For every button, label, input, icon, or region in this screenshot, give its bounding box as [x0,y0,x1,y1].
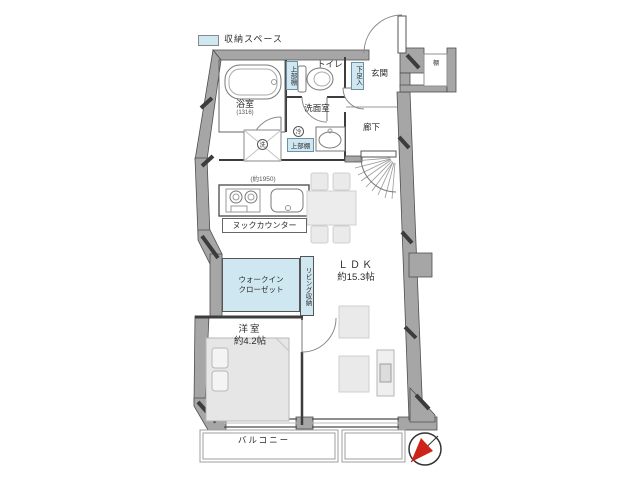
ldk-size-label: 約15.3帖 [337,273,375,283]
bedroom-size-label: 約4.2帖 [234,337,266,347]
walk-in-closet-area: ウォークイン クローゼット [222,258,300,312]
compass-icon [409,433,441,465]
bathroom-fixtures [219,60,285,132]
bedroom-label: 洋室 [238,325,261,335]
wic-label-line1: ウォークイン [239,275,284,285]
living-storage-area: リビング収納 [300,256,314,316]
legend-storage-swatch [198,35,219,46]
entrance-alcove [424,54,447,86]
hallway-label: 廊下 [363,123,380,132]
kitchen-counter [219,185,309,216]
entrance-label: 玄関 [371,69,388,78]
toilet-fixture [298,66,333,92]
washbasin-fixture [316,127,345,151]
floorplan-page: 収納スペース 上部棚 下足入 上部棚 ウォークイン クローゼット リビング収納 … [0,0,640,480]
living-furniture [339,306,394,396]
legend-storage-label: 収納スペース [224,35,283,45]
fridge-mark: 冷 [293,126,304,137]
hall-wall-stub [345,156,362,162]
washer-mark: 洗 [257,139,268,150]
nook-counter-label: ヌックカウンター [222,218,307,233]
floorplan-drawing [0,0,640,480]
upper-shelf-toilet: 上部棚 [286,61,298,90]
toilet-label: トイレ [317,60,343,69]
kitchen-width-label: (約1950) [250,176,275,183]
shoe-cabinet: 下足入 [351,62,364,90]
ldk-label: ＬＤＫ [338,260,374,271]
bed [206,338,289,421]
balcony-outline [200,430,405,462]
washroom-label: 洗面室 [304,104,330,113]
wic-label-line2: クローゼット [239,285,284,295]
upper-shelf-kitchen: 上部棚 [287,138,314,152]
dining-set [307,173,356,243]
balcony-label: バルコニー [238,436,290,445]
bathroom-size: (1316) [236,110,253,117]
shelf-label: 棚 [433,61,439,68]
bathroom-label: 浴室 [236,100,254,110]
